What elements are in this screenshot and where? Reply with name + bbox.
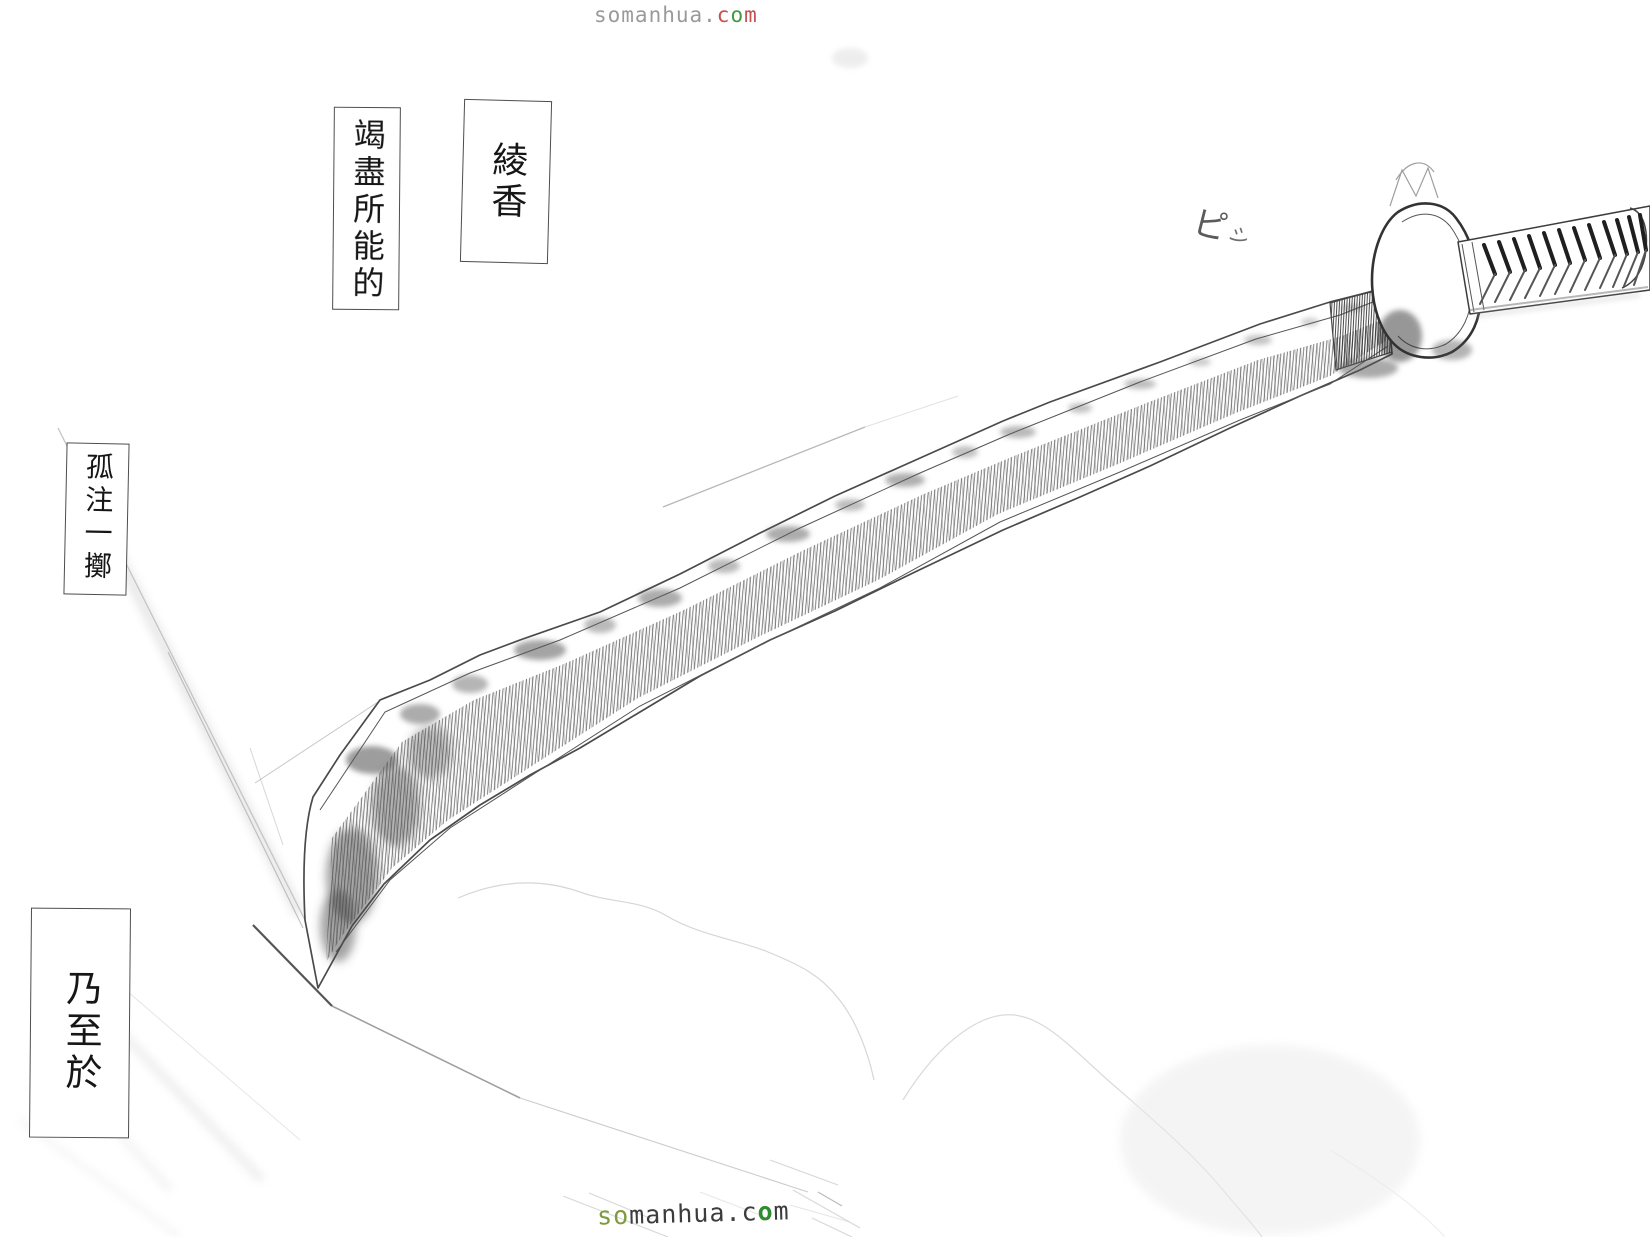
speech-box-ayaka: 綾香 — [460, 99, 552, 264]
katana-illustration — [0, 0, 1650, 1237]
speech-text-exert: 竭盡所能的 — [348, 118, 385, 303]
speech-text-even: 乃至於 — [59, 969, 101, 1095]
handle-wrap — [1458, 206, 1650, 316]
speech-box-even: 乃至於 — [29, 908, 131, 1139]
habaki-shadow — [1338, 358, 1398, 378]
speech-text-ayaka: 綾香 — [485, 140, 527, 223]
speech-box-exert: 竭盡所能的 — [332, 107, 401, 311]
manga-page: 綾香 竭盡所能的 孤注一擲 乃至於 ピ シ somanhua.com soman… — [0, 0, 1650, 1237]
katana-blade — [304, 287, 1398, 988]
speech-box-gamble: 孤注一擲 — [63, 442, 129, 595]
speech-text-gamble: 孤注一擲 — [80, 452, 114, 585]
tsuba-sketch-strokes — [1390, 163, 1438, 206]
watermark-top: somanhua.com — [594, 3, 758, 27]
background-contour-sketch — [458, 883, 1445, 1237]
blade-hatching-overlay — [326, 318, 1390, 962]
watermark-bottom: somanhua.com — [597, 1196, 790, 1230]
